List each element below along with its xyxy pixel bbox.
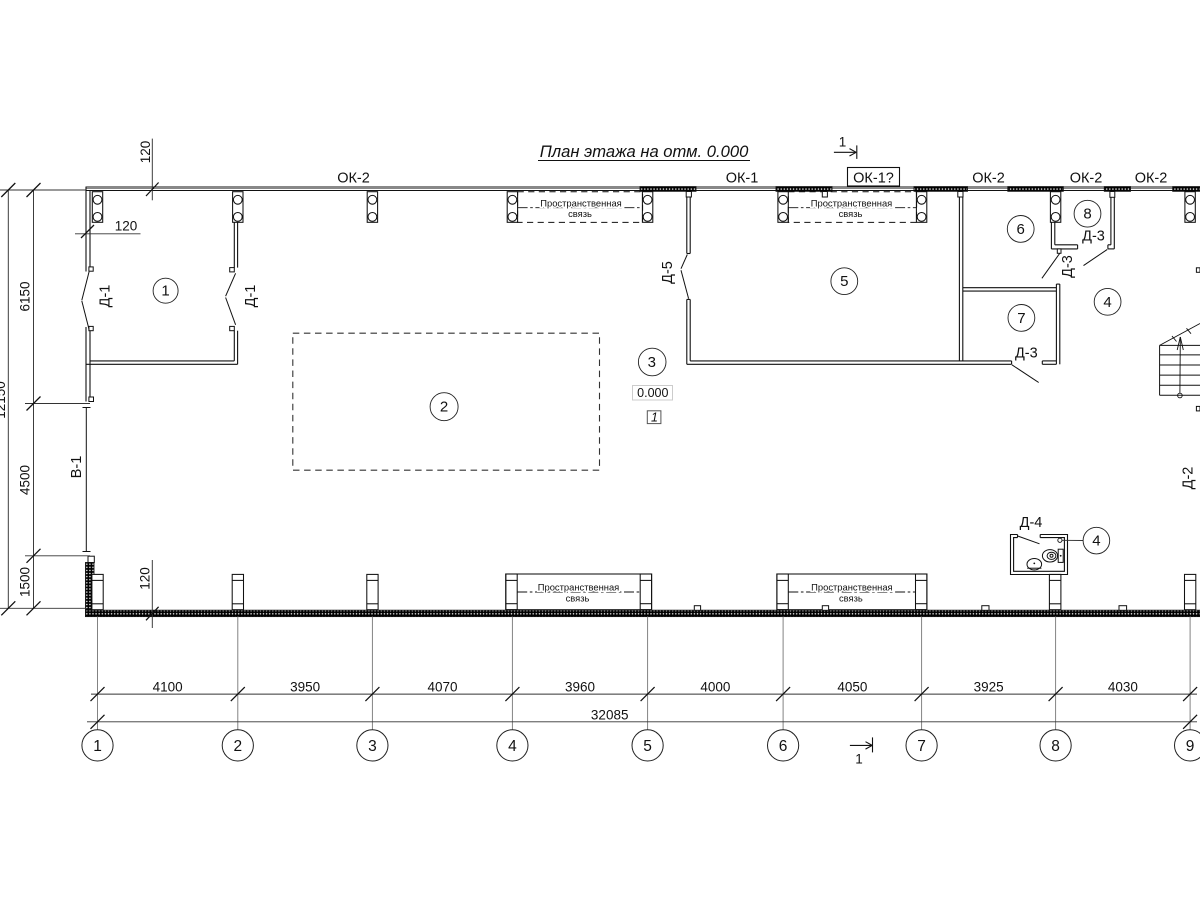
svg-text:Д-4: Д-4 <box>1020 515 1043 531</box>
svg-text:4070: 4070 <box>427 680 457 695</box>
svg-text:3925: 3925 <box>974 680 1004 695</box>
svg-text:ОК-2: ОК-2 <box>1135 170 1168 186</box>
svg-text:1: 1 <box>855 751 863 766</box>
svg-text:7: 7 <box>917 738 926 755</box>
svg-text:1: 1 <box>839 134 847 149</box>
svg-text:120: 120 <box>138 141 153 164</box>
svg-text:В-1: В-1 <box>69 456 85 479</box>
svg-text:ОК-2: ОК-2 <box>972 170 1005 186</box>
svg-text:связь: связь <box>568 208 592 219</box>
svg-text:связь: связь <box>566 592 590 603</box>
svg-text:7: 7 <box>1017 310 1025 327</box>
svg-text:5: 5 <box>840 273 848 290</box>
svg-text:5: 5 <box>643 738 652 755</box>
svg-text:3960: 3960 <box>565 680 595 695</box>
svg-text:9: 9 <box>1186 738 1195 755</box>
svg-text:4050: 4050 <box>837 680 867 695</box>
svg-text:Д-5: Д-5 <box>660 261 676 284</box>
svg-text:Пространственная: Пространственная <box>811 197 892 208</box>
svg-text:План этажа на отм. 0.000: План этажа на отм. 0.000 <box>540 142 749 161</box>
svg-text:Д-3: Д-3 <box>1082 229 1105 245</box>
svg-text:120: 120 <box>138 567 153 590</box>
svg-text:4030: 4030 <box>1108 680 1138 695</box>
svg-text:ОК-2: ОК-2 <box>337 170 370 186</box>
svg-text:связь: связь <box>839 592 863 603</box>
svg-text:ОК-2: ОК-2 <box>1070 170 1103 186</box>
svg-text:Пространственная: Пространственная <box>538 582 619 593</box>
svg-text:3: 3 <box>648 354 656 371</box>
svg-text:0.000: 0.000 <box>637 386 668 400</box>
svg-text:4000: 4000 <box>700 680 730 695</box>
svg-text:1: 1 <box>161 283 169 300</box>
svg-text:4: 4 <box>508 738 517 755</box>
svg-text:4100: 4100 <box>153 680 183 695</box>
svg-text:8: 8 <box>1051 738 1060 755</box>
svg-text:6150: 6150 <box>17 281 32 311</box>
svg-text:Д-3: Д-3 <box>1060 255 1076 278</box>
svg-text:Пространственная: Пространственная <box>540 197 621 208</box>
svg-text:8: 8 <box>1083 206 1091 223</box>
svg-text:Пространственная: Пространственная <box>811 582 892 593</box>
svg-text:Д-1: Д-1 <box>243 285 259 308</box>
svg-text:4500: 4500 <box>17 465 32 495</box>
svg-text:Д-2: Д-2 <box>1181 467 1197 490</box>
svg-text:6: 6 <box>779 738 788 755</box>
svg-text:32085: 32085 <box>591 707 629 722</box>
svg-text:6: 6 <box>1017 221 1025 238</box>
svg-text:связь: связь <box>839 208 863 219</box>
svg-text:4: 4 <box>1103 294 1111 311</box>
svg-text:3950: 3950 <box>290 680 320 695</box>
svg-text:120: 120 <box>115 219 138 234</box>
svg-text:Д-1: Д-1 <box>98 285 114 308</box>
svg-text:ОК-1: ОК-1 <box>726 170 759 186</box>
svg-text:1: 1 <box>93 738 102 755</box>
svg-text:2: 2 <box>233 738 242 755</box>
svg-text:4: 4 <box>1092 533 1100 550</box>
svg-text:12150: 12150 <box>0 381 8 419</box>
svg-text:3: 3 <box>368 738 377 755</box>
svg-text:ОК-1?: ОК-1? <box>853 170 894 186</box>
svg-text:Д-3: Д-3 <box>1015 346 1038 362</box>
svg-text:1: 1 <box>651 410 658 424</box>
svg-text:2: 2 <box>440 399 448 416</box>
svg-text:1500: 1500 <box>17 567 32 597</box>
